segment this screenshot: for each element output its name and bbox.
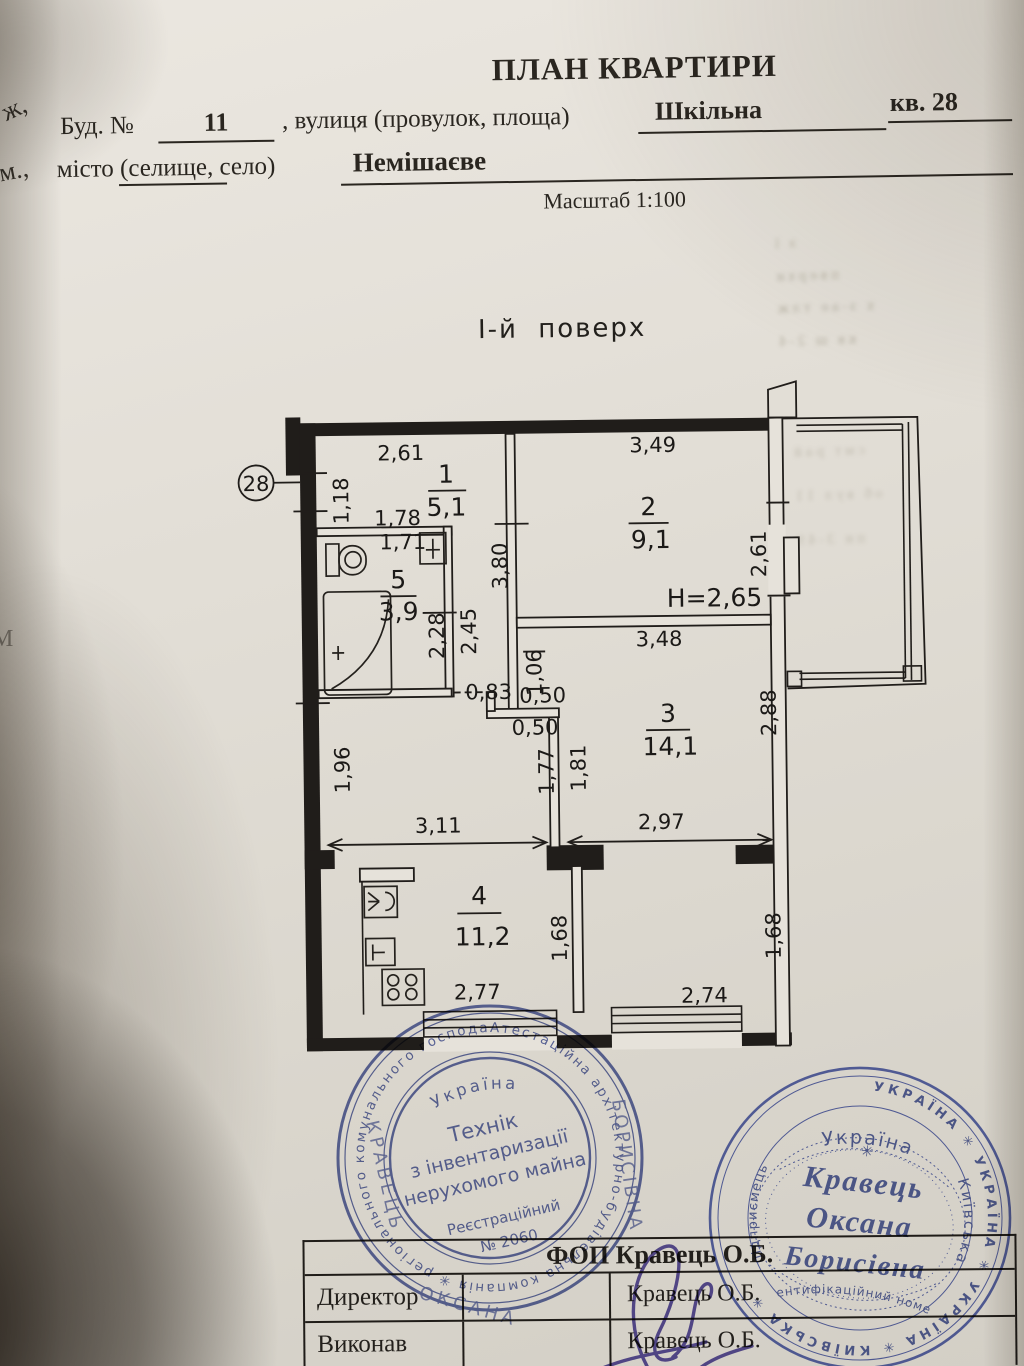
photographed-document: з ї пверхи х з-ае тлж кв ш 2-4 смт рай о…	[0, 0, 1024, 1366]
pen-signature	[0, 0, 1024, 1366]
